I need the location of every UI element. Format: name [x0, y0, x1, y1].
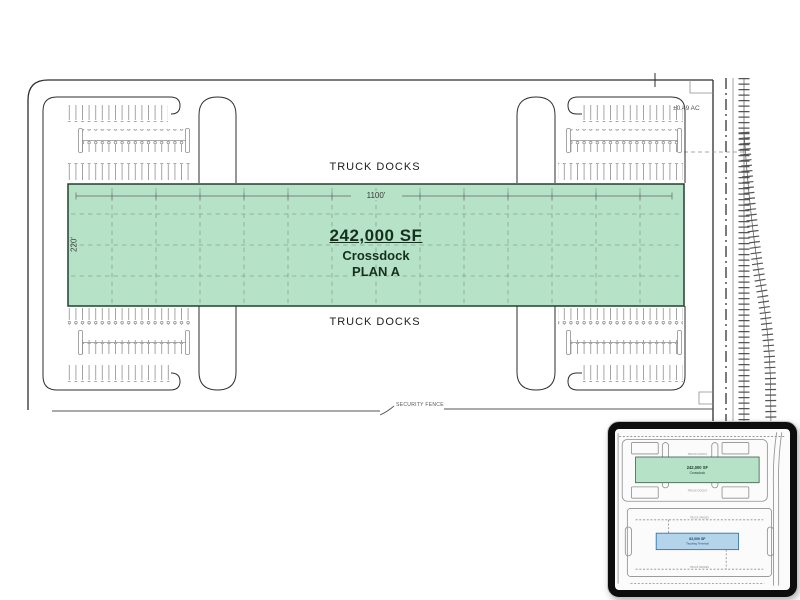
building-use-label: Crossdock [266, 248, 486, 263]
inset-truck-docks-top: TRUCK DOCKS [688, 452, 708, 456]
inset-road [773, 432, 781, 585]
inset-crossdock-name: Crossdock [690, 471, 706, 475]
overview-inset-drawing: TRUCK DOCKS 242,000 SF Crossdock TRUCK D… [615, 429, 790, 590]
parking-lot-top-left [68, 105, 192, 180]
parking-lot-top-right [558, 105, 683, 180]
site-plan-page: TRUCK DOCKS 1100' 220' 242,000 SF Crossd… [0, 0, 800, 600]
building-depth-dimension: 220' [70, 227, 79, 263]
inset-terminal-name: Trucking Terminal [686, 542, 709, 546]
inset-crossdock-site: TRUCK DOCKS 242,000 SF Crossdock TRUCK D… [622, 440, 767, 502]
acreage-label: ±0.49 AC [673, 105, 713, 112]
building-area-label: 242,000 SF [266, 226, 486, 246]
inset-crossdock-area: 242,000 SF [687, 465, 709, 470]
overview-inset-map: TRUCK DOCKS 242,000 SF Crossdock TRUCK D… [608, 422, 797, 597]
truck-docks-label-bottom: TRUCK DOCKS [305, 316, 445, 328]
inset-truck-spaces-top: TRUCK SPACES [690, 517, 709, 520]
security-fence-label: SECURITY FENCE [394, 402, 446, 408]
building-plan-label: PLAN A [266, 264, 486, 279]
parking-lot-bottom-left [68, 308, 192, 382]
parking-lot-bottom-right [558, 308, 683, 382]
building-width-dimension: 1100' [356, 191, 396, 200]
security-fence-line [52, 406, 713, 415]
inset-truck-spaces-bottom: TRUCK SPACES [690, 566, 709, 569]
inset-terminal-site: TRUCK SPACES 62,000 SF Trucking Terminal… [625, 508, 773, 576]
truck-docks-label-top: TRUCK DOCKS [305, 161, 445, 173]
inset-truck-docks-bottom: TRUCK DOCKS [688, 488, 708, 492]
